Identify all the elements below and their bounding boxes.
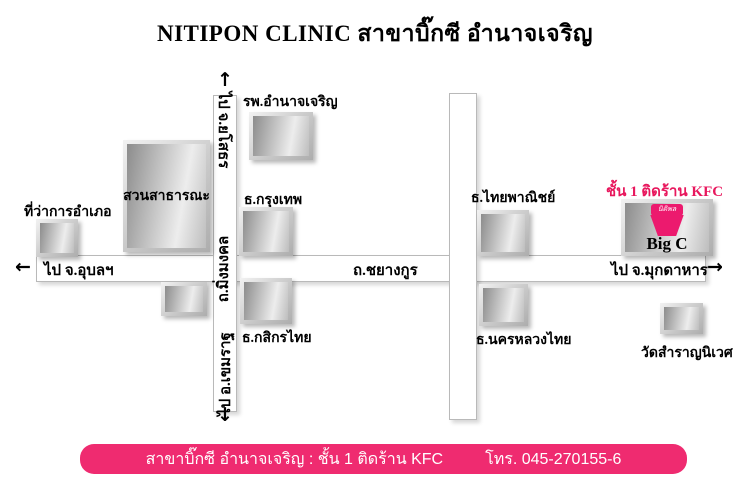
bigc-label: Big C [625, 234, 709, 254]
district-office-building [36, 219, 78, 257]
arrow-right-icon: → [707, 258, 723, 277]
hospital-label: รพ.อำนาจเจริญ [243, 91, 338, 113]
kasikorn-bank-building [240, 278, 292, 324]
arrow-up-icon: ↑ [217, 71, 233, 90]
nitipon-logo-icon: นิติพล [644, 204, 690, 236]
road-label-to-khemarat: ไป อ.เขมราฐ [213, 332, 237, 416]
park-building: สวนสาธารณะ [123, 140, 210, 252]
road-label-to-mukdahan: ไป จ.มุกดาหาร [611, 258, 708, 282]
footer-phone: โทร. 045-270155-6 [485, 447, 621, 472]
nitipon-logo-text: นิติพล [651, 204, 683, 216]
hospital-building [249, 112, 313, 160]
road-label-chayangkun: ถ.ชยางกูร [353, 258, 418, 282]
kasikorn-bank-label: ธ.กสิกรไทย [242, 327, 312, 349]
intersection-patch [450, 256, 474, 279]
building-box [161, 282, 207, 316]
footer-branch-text: สาขาบิ๊กซี อำนาจเจริญ : ชั้น 1 ติดร้าน K… [146, 447, 443, 472]
footer-banner: สาขาบิ๊กซี อำนาจเจริญ : ชั้น 1 ติดร้าน K… [80, 444, 687, 474]
arrow-left-icon: ← [15, 258, 31, 277]
road-label-to-yasothon: ไป จ.ยโสธร [212, 92, 236, 169]
road-label-to-ubon: ไป จ.อุบลฯ [44, 258, 114, 282]
map-canvas: NITIPON CLINIC สาขาบิ๊กซี อำนาจเจริญ ← →… [0, 0, 750, 500]
nakornluang-bank-label: ธ.นครหลวงไทย [476, 329, 571, 351]
park-label: สวนสาธารณะ [123, 185, 210, 207]
road-label-vertical-name: ถ.มิ่งมงคล [211, 236, 235, 302]
page-title: NITIPON CLINIC สาขาบิ๊กซี อำนาจเจริญ [0, 16, 750, 52]
bangkok-bank-building [239, 207, 293, 256]
temple-building [660, 303, 703, 334]
bigc-building: นิติพล Big C [621, 199, 713, 256]
scb-bank-label: ธ.ไทยพาณิชย์ [471, 187, 555, 209]
nakornluang-bank-building [479, 284, 528, 326]
temple-label: วัดสำราญนิเวศ [641, 342, 733, 364]
nitipon-logo-shape [648, 215, 686, 236]
scb-bank-building [477, 210, 529, 256]
